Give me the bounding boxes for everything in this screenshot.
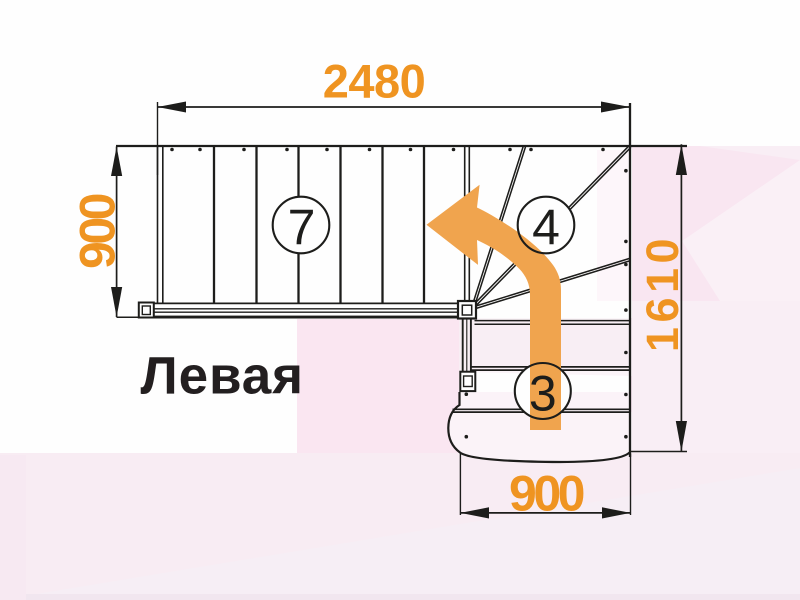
svg-text:Левая: Левая bbox=[141, 347, 304, 406]
svg-text:7: 7 bbox=[288, 200, 316, 256]
svg-text:3: 3 bbox=[529, 366, 557, 422]
svg-text:1610: 1610 bbox=[637, 234, 688, 352]
svg-text:900: 900 bbox=[509, 466, 584, 522]
svg-text:4: 4 bbox=[532, 200, 560, 256]
svg-text:900: 900 bbox=[70, 194, 126, 269]
svg-text:2480: 2480 bbox=[323, 55, 426, 108]
